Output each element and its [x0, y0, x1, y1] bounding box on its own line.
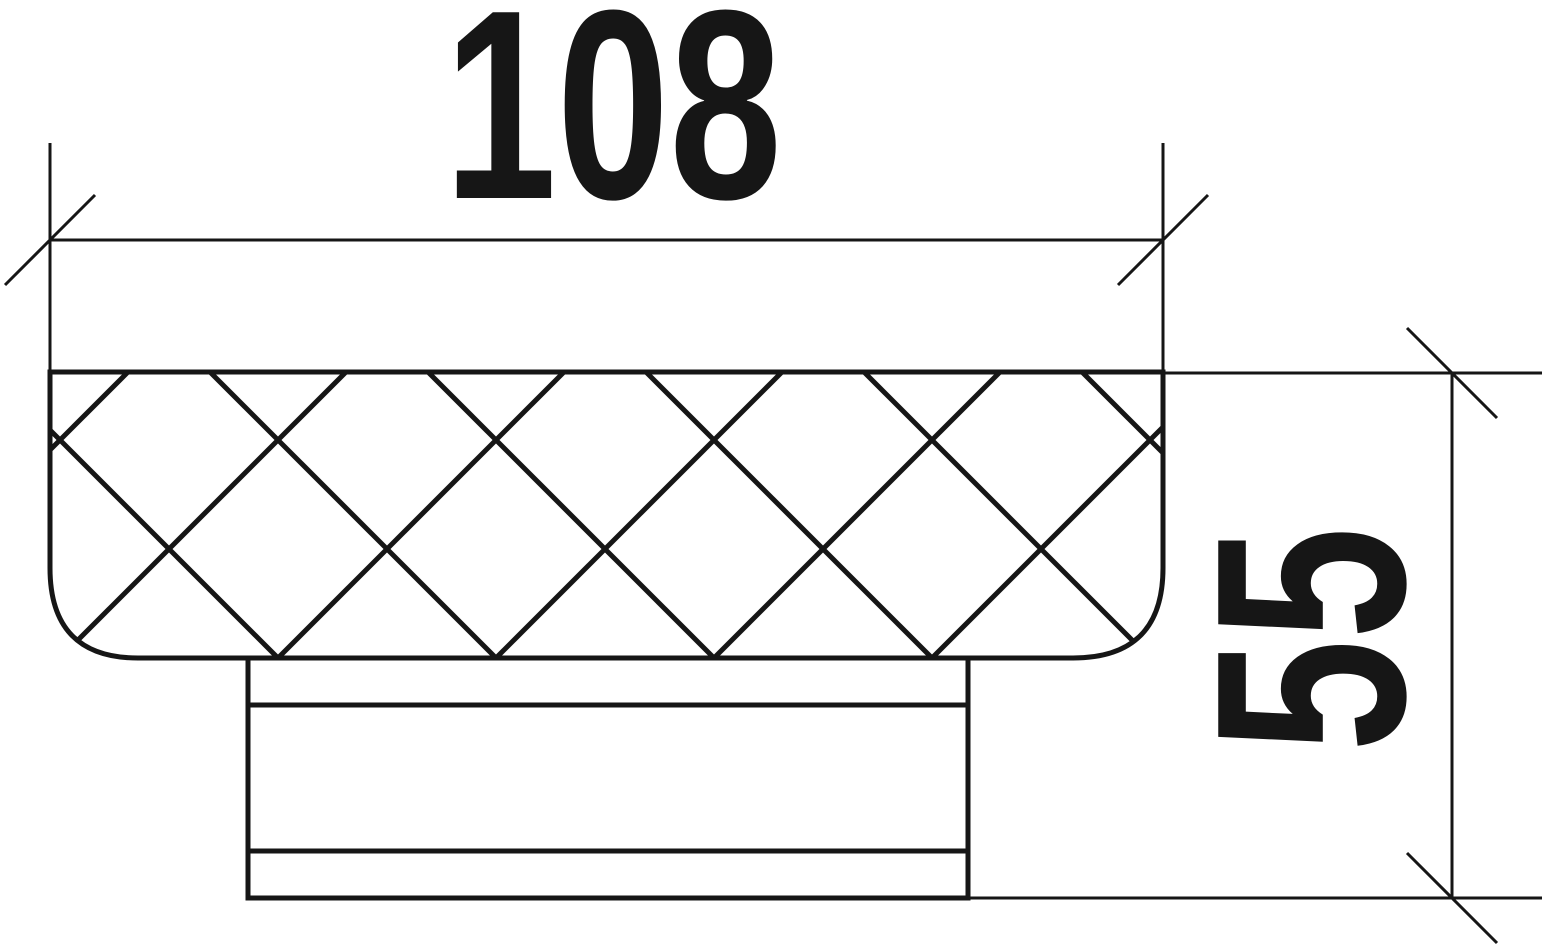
height-dimension-label: 55	[1160, 527, 1462, 752]
body-outline	[50, 372, 1163, 658]
stem-outline	[248, 658, 968, 898]
hatch-line	[710, 0, 1550, 950]
stem	[248, 658, 968, 898]
technical-drawing: 108 55	[0, 0, 1550, 950]
width-dimension-label: 108	[444, 0, 782, 256]
drawing-sheet: 108 55	[0, 0, 1550, 950]
